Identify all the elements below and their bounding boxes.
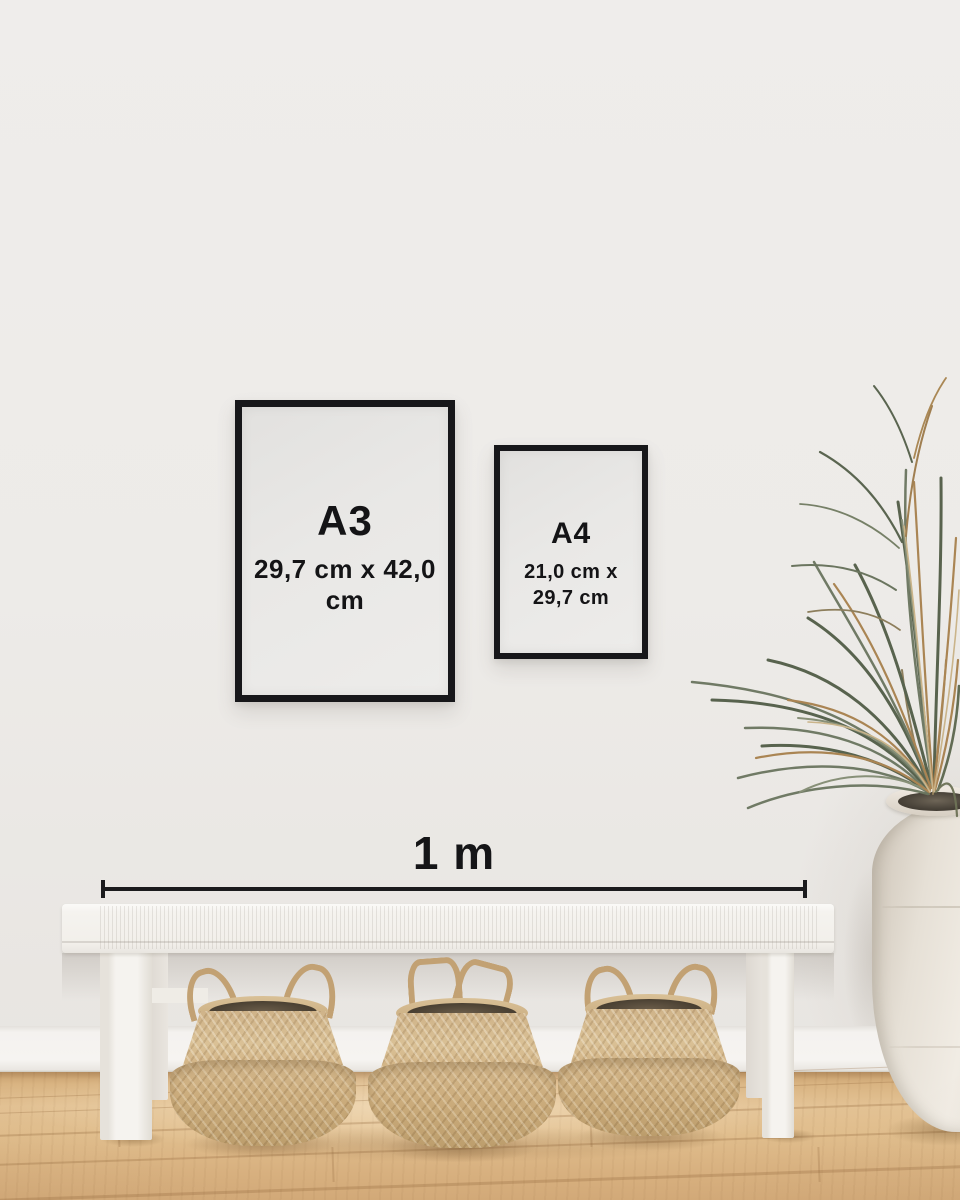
- size-guide-scene: A3 29,7 cm x 42,0 cm A4 21,0 cm x 29,7 c…: [0, 0, 960, 1200]
- vignette-overlay: [0, 0, 960, 1200]
